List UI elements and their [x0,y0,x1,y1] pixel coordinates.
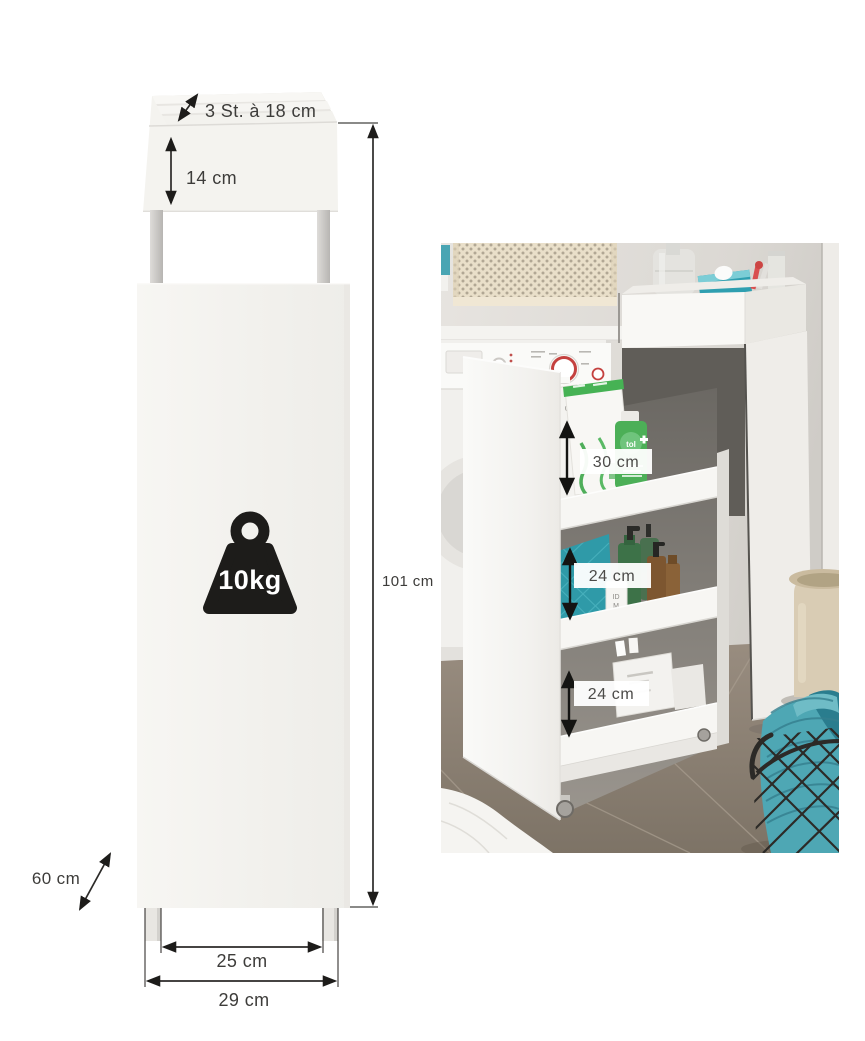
product-dimension-sheet: 10kg 3 St. à 18 cm 14 cm 101 cm 60 cm 25… [0,0,865,1041]
tray-height-label: 14 cm [186,168,237,188]
soap-text-fragment-1: ID [613,594,620,601]
dimension-diagram: 10kg 3 St. à 18 cm 14 cm 101 cm 60 cm 25… [0,0,441,1041]
top-shelf-label: 30 cm [593,454,640,471]
depth-label: 60 cm [32,869,80,888]
teal-towels [760,690,839,853]
wicker-basket [453,243,617,306]
washer-start-ring [593,369,604,380]
cabinet-legs [150,210,330,284]
green-bottle-text-fragment: tol [626,440,636,449]
cabinet-tray-front [622,292,745,348]
inner-width-label: 25 cm [216,951,267,971]
cabinet-feet [145,908,338,941]
dimension-depth: 60 cm [32,854,110,909]
pullout-cart: Hom de tol [463,357,729,820]
dimension-inner-width: 25 cm [161,908,323,971]
cart-back-edge [717,449,729,746]
product-photo: Hom de tol [441,243,839,853]
white-box-small [671,664,706,710]
cart-side-panel [463,357,560,820]
dimension-total-height: 101 cm [338,123,434,907]
max-load-label: 10kg [218,565,282,595]
bottom-shelf-label: 24 cm [588,686,635,703]
outer-width-label: 29 cm [218,990,269,1010]
middle-shelf-label: 24 cm [589,568,636,585]
total-height-label: 101 cm [382,573,434,590]
slot-pitch-label: 3 St. à 18 cm [205,101,316,121]
